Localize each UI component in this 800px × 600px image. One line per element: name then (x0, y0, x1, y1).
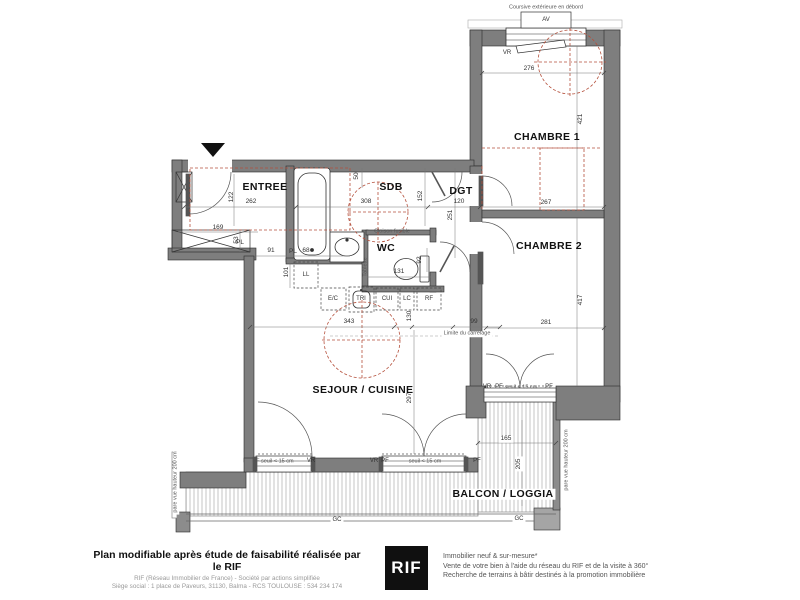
footer-service-line1: Immobilier neuf & sur-mesure* (443, 552, 648, 562)
chambre2-door-arc (482, 222, 514, 254)
closets-layer (172, 172, 250, 252)
sdb-door-arc (432, 172, 462, 202)
footer-services: Immobilier neuf & sur-mesure* Vente de v… (443, 552, 648, 581)
entry-door-leaf (186, 174, 190, 216)
footer-service-line2: Vente de votre bien à l'aide du réseau d… (443, 562, 648, 572)
washer-ll-box (294, 262, 318, 288)
footer-service-line3: Recherche de terrains à bâtir destinés à… (443, 571, 648, 581)
rif-logo: RIF (385, 546, 428, 590)
footer: Plan modifiable après étude de faisabili… (0, 545, 800, 600)
entry-door-arc (189, 172, 231, 214)
kitchen-sink-icon (353, 291, 370, 308)
floor-plan-svg (0, 0, 800, 545)
sejour-window-double (379, 414, 468, 472)
footer-disclaimer: Plan modifiable après étude de faisabili… (88, 549, 366, 591)
appliance-ec-box (321, 288, 346, 310)
footer-company-line1: RIF (Réseau Immobilier de France) - Soci… (88, 575, 366, 583)
footer-company-line2: Siège social : 1 place de Paveurs, 31130… (88, 583, 366, 591)
floor-plan: ENTREESDBDGTWCCHAMBRE 1CHAMBRE 2SEJOUR /… (0, 0, 800, 545)
sejour-window-left (253, 402, 315, 472)
floor-plan-page: ENTREESDBDGTWCCHAMBRE 1CHAMBRE 2SEJOUR /… (0, 0, 800, 600)
bathtub-icon (294, 168, 330, 260)
chambre2-window-double (484, 354, 556, 402)
washbasin-icon (330, 232, 364, 262)
footer-disclaimer-title: Plan modifiable après étude de faisabili… (88, 549, 366, 573)
chambre1-door-arc (482, 176, 512, 206)
entry-arrow-icon (201, 143, 225, 157)
toilet-icon (394, 256, 429, 282)
